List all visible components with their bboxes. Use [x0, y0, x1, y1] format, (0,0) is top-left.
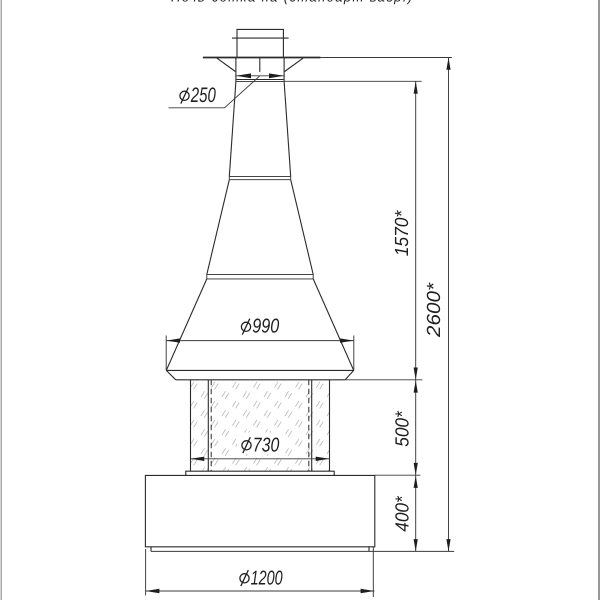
svg-text:730: 730	[253, 434, 279, 456]
svg-text:1200: 1200	[251, 567, 283, 589]
svg-text:400*: 400*	[393, 496, 414, 532]
svg-text:1570*: 1570*	[392, 210, 413, 256]
svg-text:2600*: 2600*	[424, 282, 445, 338]
svg-text:500*: 500*	[393, 411, 414, 447]
svg-text:Печь-сетка на (стандарт вагр.): Печь-сетка на (стандарт вагр.)	[171, 0, 414, 5]
svg-text:990: 990	[252, 316, 279, 338]
svg-text:250: 250	[190, 84, 216, 107]
